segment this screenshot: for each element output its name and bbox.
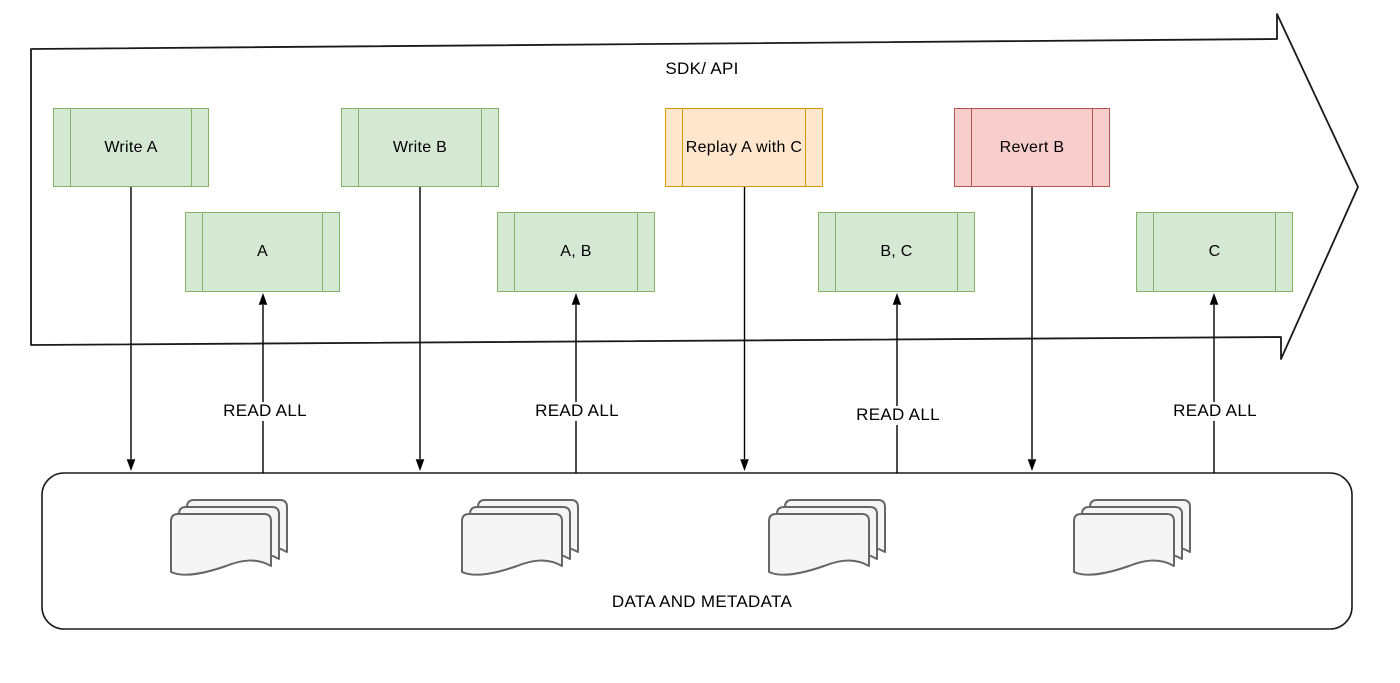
state-b-c: B, C [818, 212, 975, 292]
diagram-shapes-layer [0, 0, 1400, 683]
operation-write-a-label: Write A [104, 139, 157, 157]
operation-write-b-label: Write B [393, 139, 447, 157]
state-a-b-label: A, B [560, 243, 591, 261]
state-a-label: A [257, 243, 268, 261]
arrowhead-down-icon [740, 459, 749, 471]
read-all-label: READ ALL [532, 402, 622, 421]
state-c: C [1136, 212, 1293, 292]
operation-revert-b-label: Revert B [1000, 139, 1065, 157]
arrowhead-down-icon [1028, 459, 1037, 471]
sdk-api-label: SDK/ API [665, 60, 738, 79]
arrowhead-down-icon [416, 459, 425, 471]
state-c-label: C [1209, 243, 1221, 261]
state-a-b: A, B [497, 212, 655, 292]
operation-write-b: Write B [341, 108, 499, 187]
document-stack-icon [769, 500, 885, 575]
read-all-label: READ ALL [853, 406, 943, 425]
state-a: A [185, 212, 340, 292]
operation-replay-a-with-c: Replay A with C [665, 108, 823, 187]
operation-revert-b: Revert B [954, 108, 1110, 187]
operation-replay-a-with-c-label: Replay A with C [686, 139, 803, 157]
document-stack-icon [1074, 500, 1190, 575]
document-stack-icon [462, 500, 578, 575]
state-b-c-label: B, C [880, 243, 912, 261]
diagram-canvas: Write A Write B Replay A with C Revert B… [0, 0, 1400, 683]
read-all-label: READ ALL [1170, 402, 1260, 421]
operation-write-a: Write A [53, 108, 209, 187]
read-all-label: READ ALL [220, 402, 310, 421]
storage-label: DATA AND METADATA [612, 593, 792, 612]
document-stack-icon [171, 500, 287, 575]
arrowhead-down-icon [127, 459, 136, 471]
